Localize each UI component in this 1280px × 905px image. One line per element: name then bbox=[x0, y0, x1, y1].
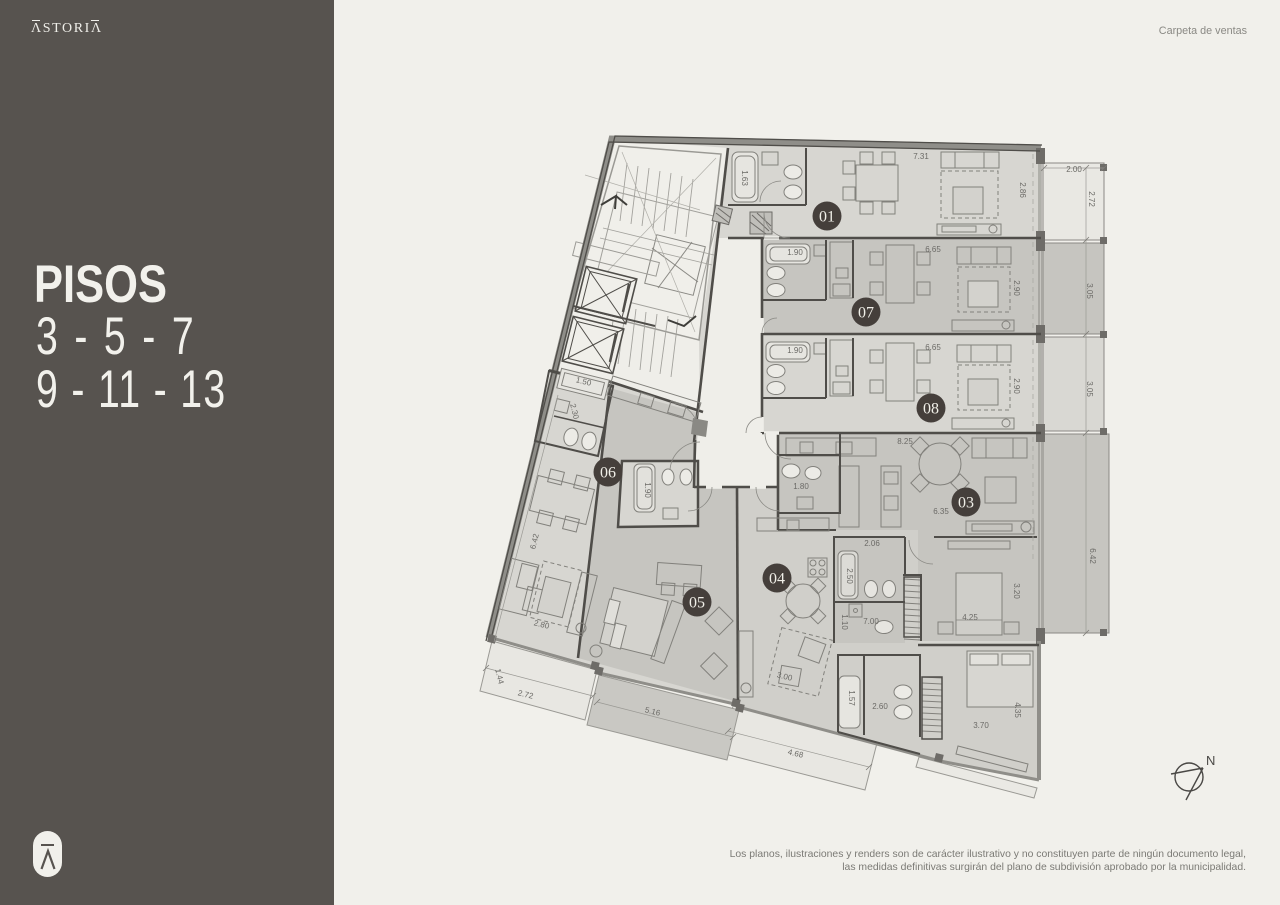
svg-text:1.90: 1.90 bbox=[643, 482, 652, 498]
svg-text:2.90: 2.90 bbox=[1012, 280, 1021, 296]
svg-text:6.65: 6.65 bbox=[925, 343, 941, 352]
svg-text:8.25: 8.25 bbox=[897, 437, 913, 446]
svg-text:03: 03 bbox=[958, 495, 974, 512]
svg-text:3.70: 3.70 bbox=[973, 721, 989, 730]
svg-text:08: 08 bbox=[923, 401, 939, 418]
svg-text:6.42: 6.42 bbox=[1088, 548, 1097, 564]
svg-text:1.90: 1.90 bbox=[787, 346, 803, 355]
svg-text:7.00: 7.00 bbox=[863, 617, 879, 626]
svg-text:01: 01 bbox=[819, 209, 835, 226]
svg-text:2.72: 2.72 bbox=[1087, 191, 1096, 207]
svg-text:3.20: 3.20 bbox=[1012, 583, 1021, 599]
svg-text:07: 07 bbox=[858, 305, 874, 322]
svg-text:1.80: 1.80 bbox=[793, 482, 809, 491]
svg-text:2.86: 2.86 bbox=[1018, 182, 1027, 198]
svg-text:2.00: 2.00 bbox=[1066, 165, 1082, 174]
svg-text:7.31: 7.31 bbox=[913, 152, 929, 161]
svg-text:4.25: 4.25 bbox=[962, 613, 978, 622]
svg-text:2.06: 2.06 bbox=[864, 539, 880, 548]
svg-text:4.35: 4.35 bbox=[1013, 702, 1022, 718]
svg-text:05: 05 bbox=[689, 595, 705, 612]
svg-text:3.05: 3.05 bbox=[1085, 381, 1094, 397]
svg-text:1.90: 1.90 bbox=[787, 248, 803, 257]
svg-text:6.65: 6.65 bbox=[925, 245, 941, 254]
svg-text:1.10: 1.10 bbox=[840, 614, 849, 630]
svg-text:6.35: 6.35 bbox=[933, 507, 949, 516]
svg-text:N: N bbox=[1206, 753, 1215, 768]
svg-text:1.57: 1.57 bbox=[847, 690, 856, 706]
svg-text:1.63: 1.63 bbox=[740, 170, 749, 186]
svg-text:2.60: 2.60 bbox=[872, 702, 888, 711]
svg-text:04: 04 bbox=[769, 571, 785, 588]
svg-text:06: 06 bbox=[600, 465, 616, 482]
svg-text:2.50: 2.50 bbox=[845, 568, 854, 584]
svg-text:2.90: 2.90 bbox=[1012, 378, 1021, 394]
svg-text:3.05: 3.05 bbox=[1085, 283, 1094, 299]
